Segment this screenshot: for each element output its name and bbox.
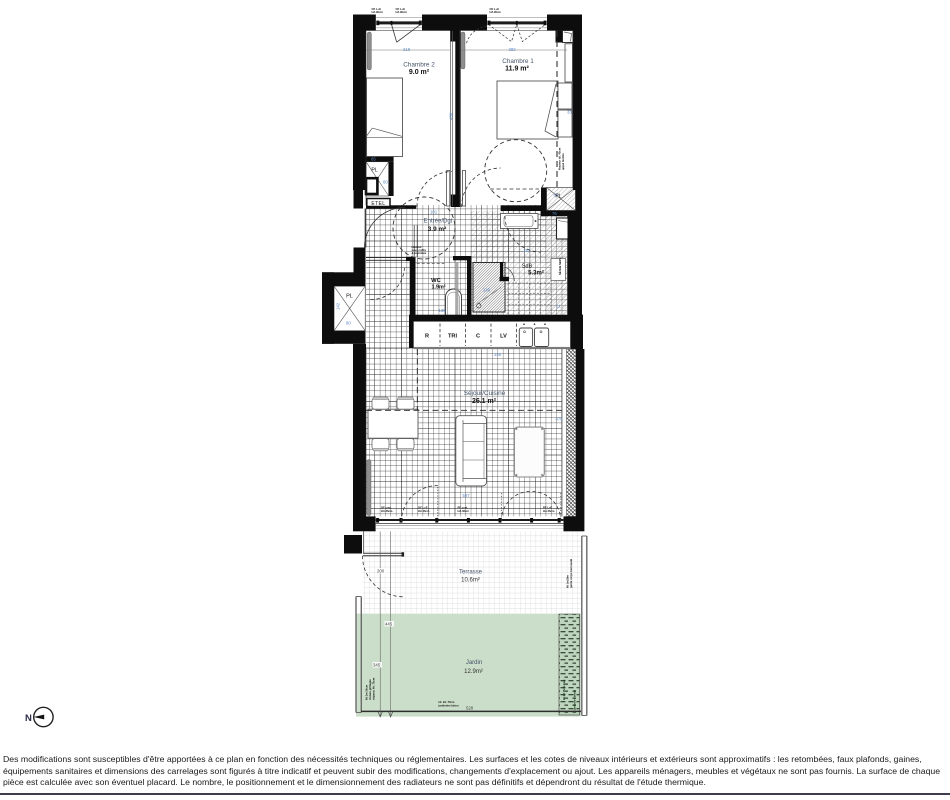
svg-text:jardinière béton: jardinière béton [573, 689, 577, 711]
svg-text:garde corps barreaudé: garde corps barreaudé [569, 558, 573, 588]
svg-text:Hauteur all. 45cm: Hauteur all. 45cm [558, 147, 562, 170]
svg-text:445: 445 [385, 622, 393, 627]
svg-text:LL: LL [557, 304, 562, 309]
svg-text:140: 140 [483, 288, 491, 293]
svg-text:C: C [476, 334, 480, 340]
svg-text:135: 135 [439, 308, 447, 313]
svg-text:470: 470 [556, 417, 564, 422]
svg-text:SdB: SdB [522, 264, 533, 270]
svg-text:LV: LV [500, 334, 507, 340]
svg-text:N: N [25, 713, 32, 724]
svg-text:Chambre 2: Chambre 2 [403, 62, 435, 69]
svg-text:Ht 2d 75cm haie: Ht 2d 75cm haie [562, 679, 566, 700]
svg-text:Terrasse: Terrasse [459, 570, 483, 576]
svg-text:WC: WC [431, 278, 441, 284]
svg-text:Entrée/Dgt: Entrée/Dgt [424, 219, 453, 225]
svg-text:101: 101 [430, 210, 438, 215]
svg-text:TRI: TRI [448, 334, 457, 340]
svg-text:12.9m²: 12.9m² [464, 669, 483, 675]
svg-text:Ht 1m10m: Ht 1m10m [566, 575, 570, 588]
svg-text:HA 36cm: HA 36cm [458, 509, 470, 513]
svg-text:60: 60 [383, 180, 388, 185]
svg-text:345: 345 [373, 663, 381, 668]
svg-text:PL: PL [346, 294, 353, 300]
svg-text:séparat. Ht. 75cm: séparat. Ht. 75cm [372, 677, 376, 700]
svg-text:jardinière béton: jardinière béton [438, 703, 460, 707]
svg-text:200: 200 [377, 569, 385, 574]
svg-text:HA 90cm: HA 90cm [490, 10, 502, 14]
svg-text:Chambre 1: Chambre 1 [502, 58, 534, 65]
svg-text:3.9 m²: 3.9 m² [428, 226, 446, 233]
svg-text:33: 33 [567, 110, 572, 115]
svg-text:appui fenêtre: appui fenêtre [561, 153, 565, 170]
svg-text:11.9 m²: 11.9 m² [505, 66, 529, 73]
svg-text:HA 36cm: HA 36cm [381, 509, 393, 513]
svg-text:26.1 m²: 26.1 m² [472, 398, 497, 405]
svg-text:528: 528 [466, 706, 474, 711]
svg-text:PL: PL [371, 168, 377, 174]
svg-text:80: 80 [346, 321, 351, 326]
svg-text:5.3m²: 5.3m² [528, 270, 544, 277]
svg-text:142: 142 [336, 302, 341, 310]
svg-text:PL: PL [555, 194, 561, 200]
svg-text:597: 597 [463, 493, 471, 498]
svg-text:HA 36cm: HA 36cm [418, 509, 430, 513]
svg-text:76: 76 [552, 211, 557, 216]
svg-text:Ht 1m 10cm: Ht 1m 10cm [365, 684, 369, 700]
svg-text:ETEL: ETEL [371, 201, 385, 207]
svg-text:282: 282 [509, 47, 517, 52]
svg-text:Séjour/Cuisine: Séjour/Cuisine [464, 390, 506, 397]
svg-text:430: 430 [449, 112, 454, 120]
svg-text:65: 65 [371, 157, 376, 162]
svg-text:cloture grillagée: cloture grillagée [368, 679, 372, 700]
svg-text:219: 219 [403, 47, 411, 52]
svg-text:HA 90cm: HA 90cm [372, 10, 384, 14]
svg-text:Jardin: Jardin [466, 660, 482, 666]
svg-text:9.0 m²: 9.0 m² [409, 69, 430, 76]
svg-text:110: 110 [523, 248, 530, 253]
svg-text:HA 90cm: HA 90cm [396, 10, 408, 14]
svg-text:HA 36cm: HA 36cm [543, 509, 555, 513]
svg-text:346: 346 [494, 352, 502, 357]
svg-text:1.9m²: 1.9m² [431, 285, 445, 291]
svg-text:10.6m²: 10.6m² [461, 578, 480, 584]
svg-text:R: R [425, 334, 429, 340]
svg-text:& retombée: & retombée [412, 251, 427, 255]
